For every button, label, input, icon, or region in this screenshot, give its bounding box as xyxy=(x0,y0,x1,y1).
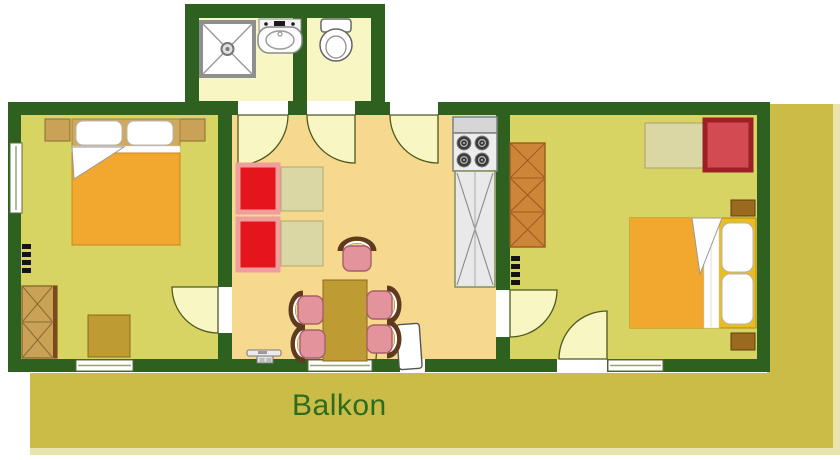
balcony-area-right xyxy=(767,104,833,448)
bedroom-right-door-opening xyxy=(496,290,510,337)
bathroom-floor xyxy=(199,18,293,101)
balcony-door-opening-living xyxy=(400,359,425,372)
balcony-door-opening-bedroom xyxy=(557,359,607,372)
living-room-floor xyxy=(232,115,496,359)
wc-door-opening xyxy=(307,101,355,115)
balcony-edge-bottom xyxy=(30,448,840,455)
balcony-edge-right xyxy=(833,104,840,455)
apartment-floor-plan: Balkon xyxy=(0,0,840,460)
balcony-label: Balkon xyxy=(292,391,387,421)
bedroom-right-floor xyxy=(510,115,757,359)
entrance-door-opening xyxy=(390,102,438,115)
bedroom-left-floor xyxy=(21,115,218,359)
balcony-area-bottom xyxy=(30,373,833,448)
bathroom-door-opening xyxy=(238,101,288,115)
wc-floor xyxy=(307,18,371,101)
bedroom-left-door-opening xyxy=(218,287,232,333)
